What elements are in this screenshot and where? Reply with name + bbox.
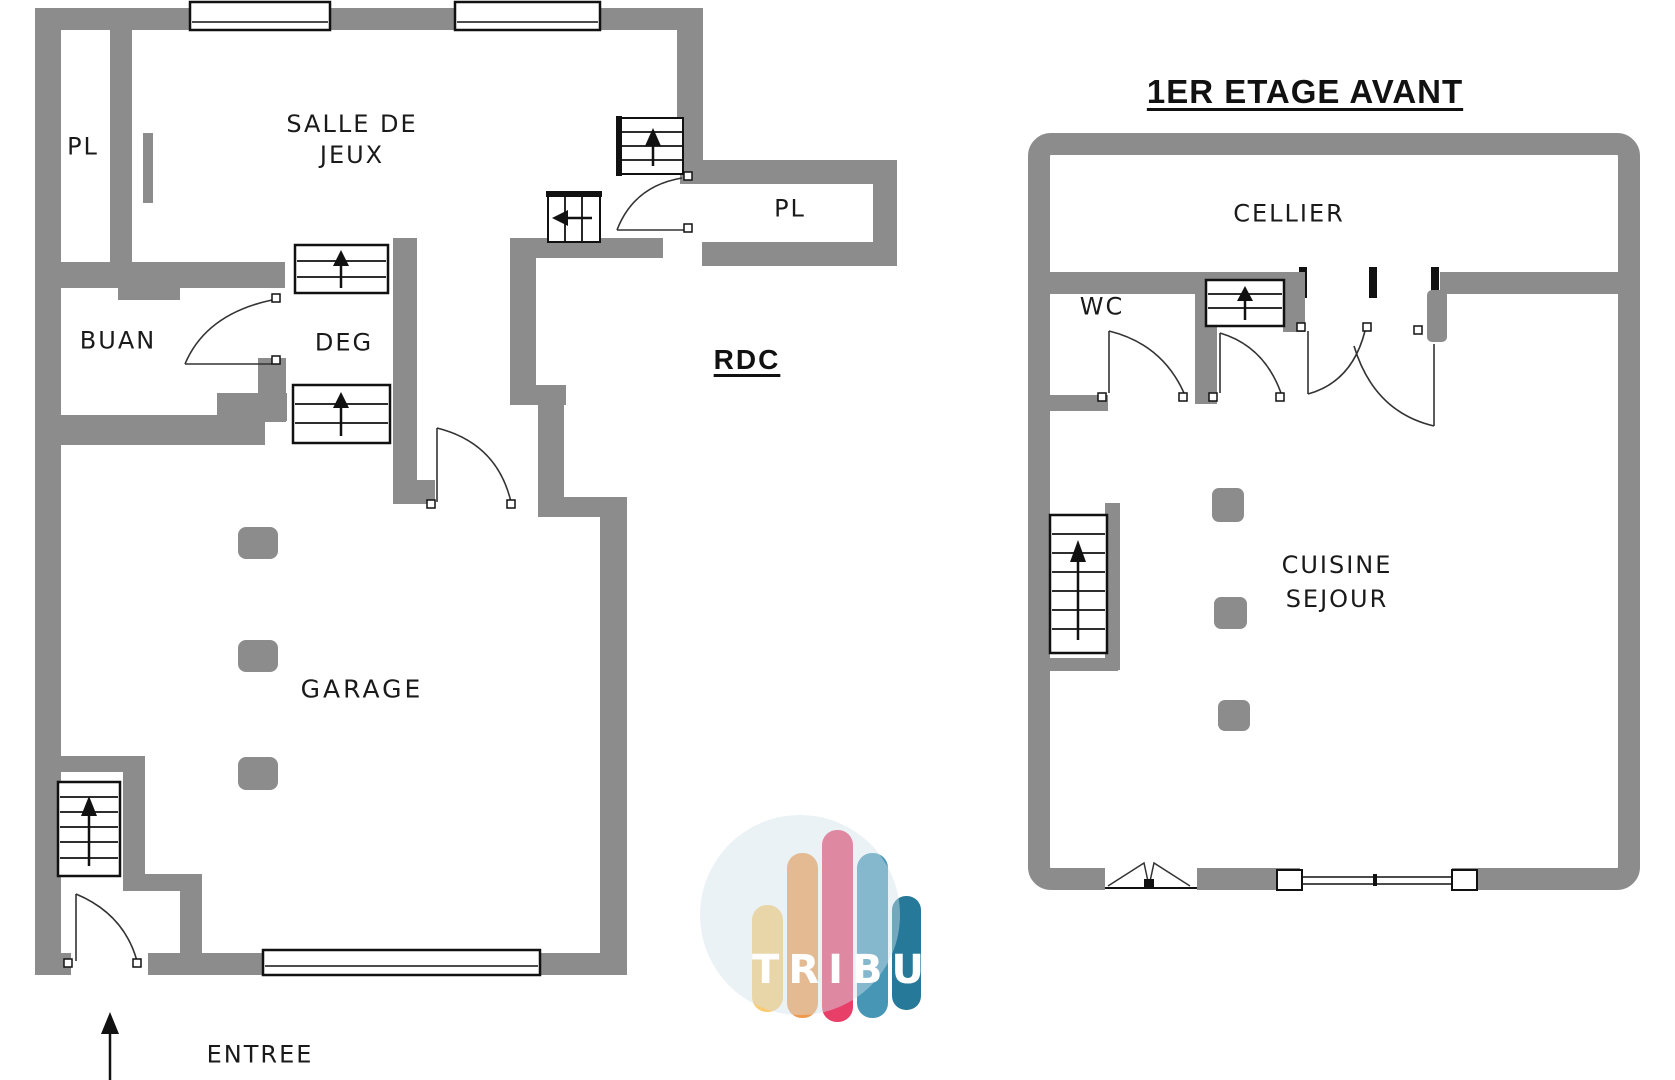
room-label-deg: DEG bbox=[315, 328, 373, 359]
pillar-icon bbox=[1212, 488, 1250, 731]
door-swing-icon bbox=[1098, 331, 1187, 401]
stairs-icon bbox=[1050, 515, 1107, 653]
room-label-cuisine-sejour: CUISINE SEJOUR bbox=[1282, 548, 1393, 616]
floorplan-canvas: PL SALLE DE JEUX BUAN DEG PL GARAGE RDC … bbox=[0, 0, 1675, 1080]
stairs-icon bbox=[546, 191, 602, 242]
stairs-icon bbox=[58, 782, 120, 876]
door-swing-icon bbox=[1209, 333, 1284, 401]
door-swing-icon bbox=[64, 894, 141, 967]
room-label-cellier: CELLIER bbox=[1233, 199, 1345, 230]
garage-door-icon bbox=[263, 950, 540, 975]
room-label-pl: PL bbox=[774, 194, 806, 225]
entrance-label: ENTREE bbox=[207, 1040, 314, 1071]
door-swing-icon bbox=[427, 428, 515, 508]
pillar-icon bbox=[238, 527, 278, 790]
rdc-plan-title: RDC bbox=[714, 344, 781, 376]
door-swing-icon bbox=[1297, 323, 1371, 394]
sliding-door-icon bbox=[1277, 866, 1477, 892]
bifold-window-icon bbox=[1105, 863, 1197, 892]
stairs-icon bbox=[293, 385, 390, 443]
room-label-pl-closet: PL bbox=[67, 132, 99, 163]
etage-walls bbox=[1039, 144, 1629, 879]
door-swing-icon bbox=[185, 294, 280, 364]
room-label-buan: BUAN bbox=[80, 326, 156, 357]
stairs-icon bbox=[616, 116, 683, 176]
entrance-arrow-icon bbox=[101, 1012, 119, 1080]
room-label-wc: WC bbox=[1080, 292, 1125, 323]
room-label-cuisine-line1: CUISINE bbox=[1282, 548, 1393, 582]
floorplan-drawing bbox=[0, 0, 1675, 1080]
room-label-salle-de-jeux: SALLE DE JEUX bbox=[286, 109, 417, 171]
tribu-logo-text: TRIBU bbox=[743, 947, 933, 993]
stairs-icon bbox=[1206, 280, 1284, 326]
door-swing-icon bbox=[1354, 326, 1434, 426]
room-label-garage: GARAGE bbox=[301, 674, 424, 705]
etage-plan-title: 1ER ETAGE AVANT bbox=[1147, 73, 1463, 111]
room-label-salle-line1: SALLE DE bbox=[286, 109, 417, 140]
room-label-salle-line2: JEUX bbox=[286, 140, 417, 171]
room-label-cuisine-line2: SEJOUR bbox=[1282, 582, 1393, 616]
stairs-icon bbox=[295, 245, 388, 293]
